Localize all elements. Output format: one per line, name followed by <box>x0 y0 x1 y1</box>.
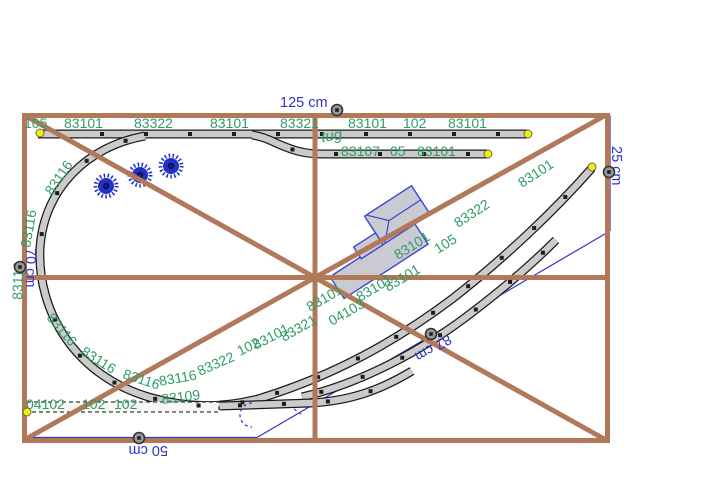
tree-icon[interactable] <box>161 156 182 177</box>
track-part-label: 83101 <box>64 115 103 131</box>
track-joint-icon <box>238 403 242 407</box>
track-joint-icon <box>112 381 116 385</box>
track-joint-icon <box>124 139 128 143</box>
track-joint-icon <box>144 132 148 136</box>
track-joint-icon <box>394 335 398 339</box>
track-joint-icon <box>334 152 338 156</box>
track-joint-icon <box>400 356 404 360</box>
track-part-label: 04102 <box>26 396 65 412</box>
track-part-label: 105 <box>24 115 48 131</box>
track-part-label: 83116 <box>44 310 81 349</box>
track-part-label: 83107 <box>341 143 380 159</box>
track-part-label: 102 <box>82 396 106 412</box>
track-joint-icon <box>85 159 89 163</box>
track-end-marker <box>36 129 44 137</box>
layout-svg: 105831018332283101833218310110283101tug8… <box>0 0 720 489</box>
track-joint-icon <box>408 132 412 136</box>
track-part-label: 83321 <box>280 115 319 131</box>
track-part-label: 83101 <box>210 115 249 131</box>
dimension-handle[interactable] <box>604 167 615 178</box>
baseboard-frame <box>24 115 608 441</box>
track-end-marker <box>23 408 31 416</box>
track-part-label: 83101 <box>348 115 387 131</box>
track-joint-icon <box>232 132 236 136</box>
track-joint-icon <box>474 308 478 312</box>
track-joint-icon <box>466 152 470 156</box>
track-joint-icon <box>466 284 470 288</box>
track-joint-icon <box>508 280 512 284</box>
track-joint-icon <box>532 226 536 230</box>
track-part-label: 83322 <box>451 196 493 231</box>
track-joint-icon <box>275 391 279 395</box>
dimension-handle[interactable] <box>15 262 26 273</box>
track-end-marker <box>524 130 532 138</box>
track-plan-canvas: 105831018332283101833218310110283101tug8… <box>0 0 720 489</box>
track-joint-icon <box>364 132 368 136</box>
track-part-label: 105 <box>431 230 459 256</box>
track-joint-icon <box>356 356 360 360</box>
track-joint-icon <box>319 390 323 394</box>
track-joint-icon <box>153 397 157 401</box>
track-joint-icon <box>282 402 286 406</box>
track-joint-icon <box>326 399 330 403</box>
dimension-handle[interactable] <box>134 433 145 444</box>
dimension-label: 125 cm <box>280 95 328 111</box>
track-end-marker <box>484 150 492 158</box>
track-joint-icon <box>361 375 365 379</box>
dimension-handle[interactable] <box>426 329 437 340</box>
track-joint-icon <box>496 132 500 136</box>
track-joint-icon <box>276 132 280 136</box>
track-joint-icon <box>197 403 201 407</box>
dimension-label: 50 cm <box>129 442 169 458</box>
track-part-label: 83116 <box>158 367 198 389</box>
track-part-label: 83322 <box>195 348 237 379</box>
track-part-label: 05 <box>390 143 406 159</box>
dimension-handle[interactable] <box>332 105 343 116</box>
track-joint-icon <box>563 195 567 199</box>
track-joint-icon <box>431 311 435 315</box>
tree-icon[interactable] <box>96 176 117 197</box>
track-joint-icon <box>290 148 294 152</box>
track-part-label: 83322 <box>134 115 173 131</box>
track-joint-icon <box>40 232 44 236</box>
track-joint-icon <box>541 251 545 255</box>
track-part-label: 102 <box>403 115 427 131</box>
track-joint-icon <box>188 132 192 136</box>
track-joint-icon <box>500 256 504 260</box>
track-part-label: 102 <box>114 396 138 412</box>
track-part-label: 83101 <box>448 115 487 131</box>
track-joint-icon <box>369 389 373 393</box>
track-end-marker <box>588 163 596 171</box>
track-part-label: 83101 <box>417 143 456 159</box>
dimension-label: 25 cm <box>608 146 624 186</box>
track-joint-icon <box>452 132 456 136</box>
track-joint-icon <box>100 132 104 136</box>
